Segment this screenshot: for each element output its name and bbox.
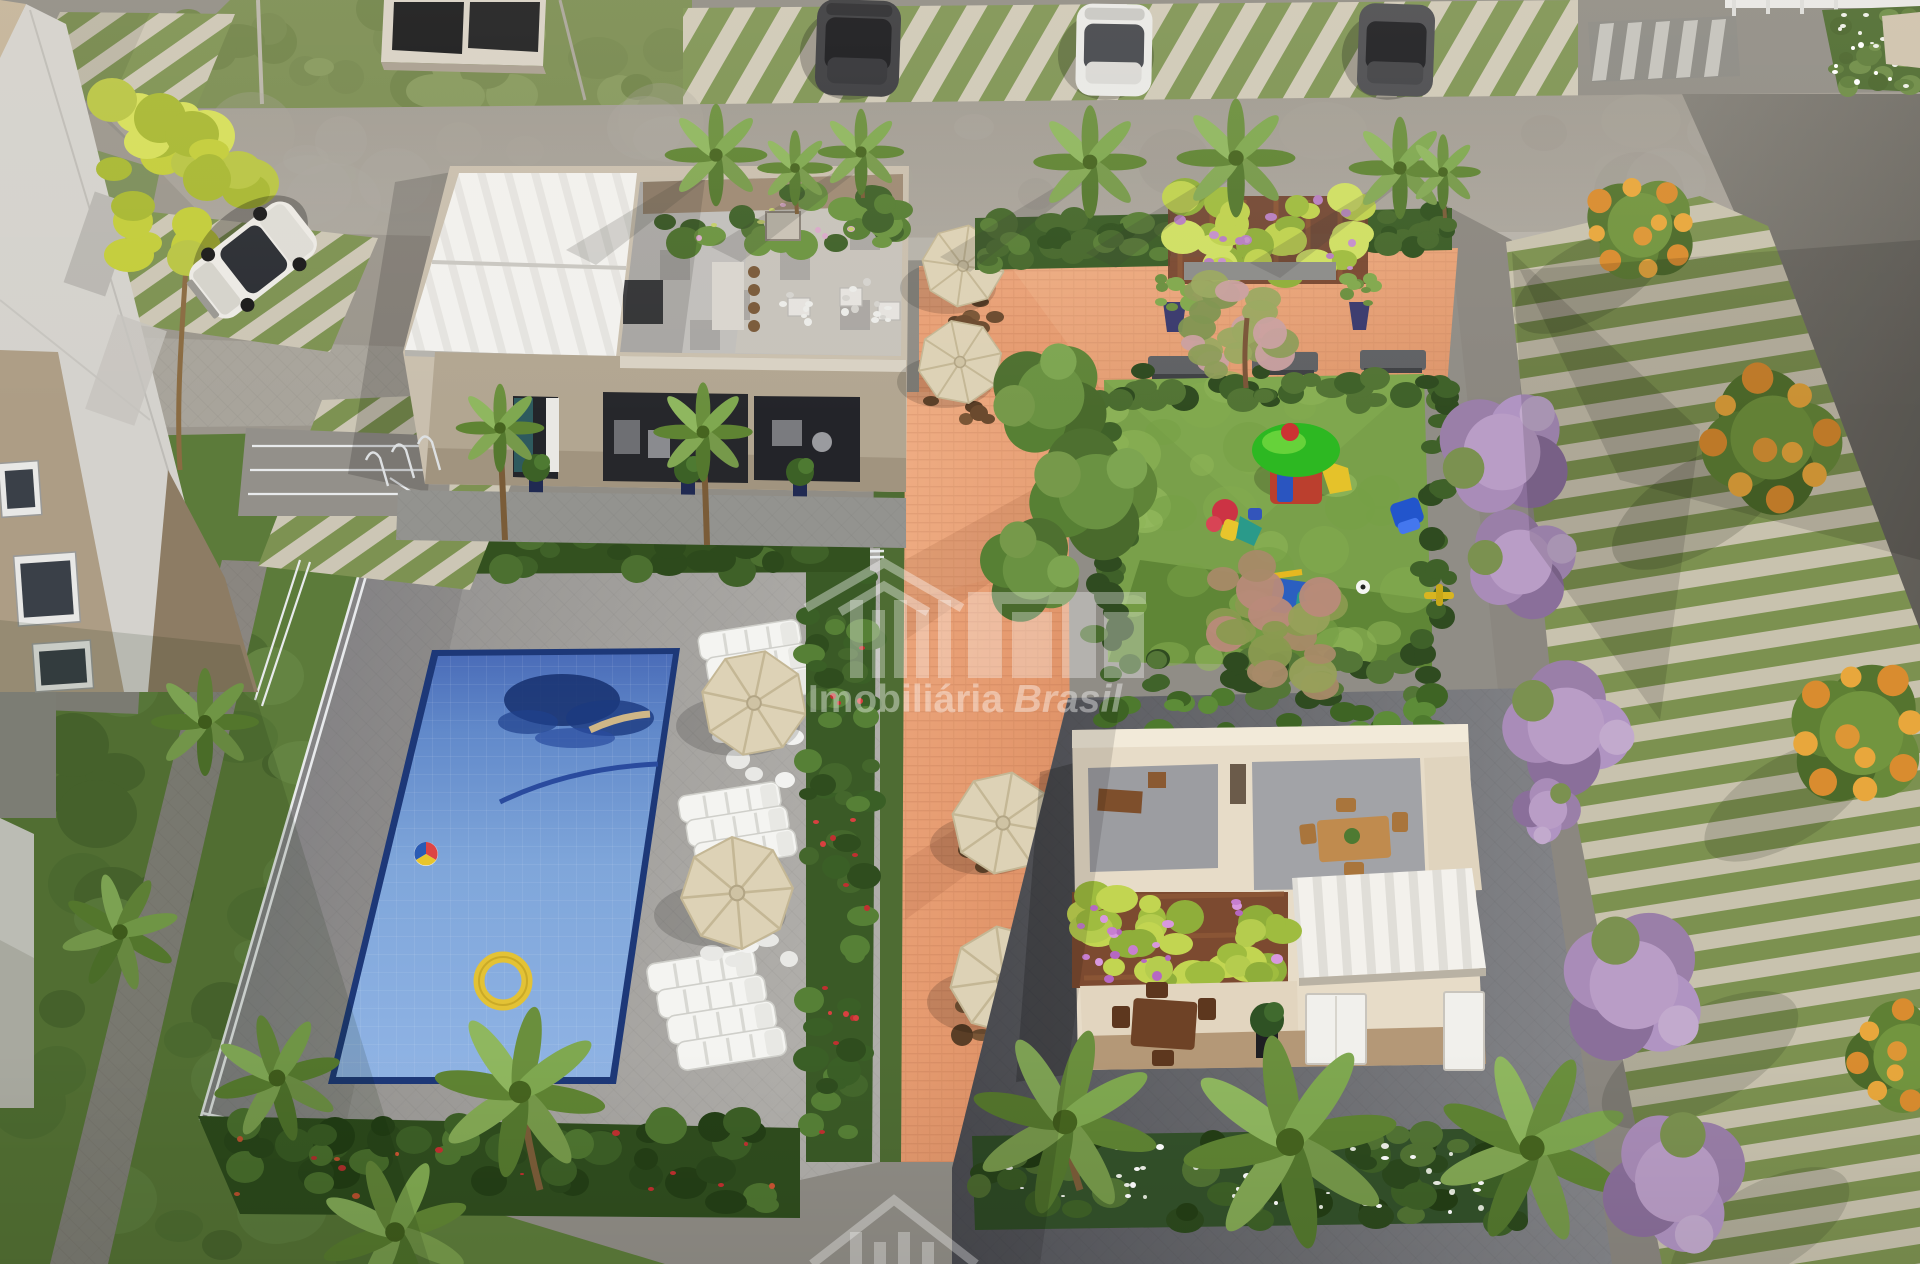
svg-text:Imobiliária Brasil: Imobiliária Brasil (808, 678, 1123, 721)
